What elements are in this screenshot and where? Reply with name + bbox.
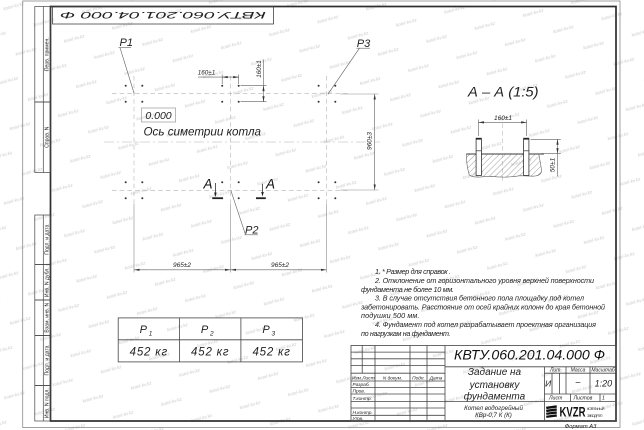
svg-text:Формат А3: Формат А3	[565, 424, 597, 430]
svg-text:1: 1	[602, 396, 605, 402]
svg-text:Изм.Лист: Изм.Лист	[352, 375, 375, 381]
svg-text:452 кг: 452 кг	[252, 346, 290, 358]
svg-text:Дата: Дата	[429, 375, 443, 381]
svg-text:фундамента: фундамента	[464, 390, 526, 402]
svg-text:452 кг: 452 кг	[130, 346, 168, 358]
svg-text:Взам. инв. N: Взам. инв. N	[45, 302, 51, 332]
svg-text:Инв. N подл.: Инв. N подл.	[45, 388, 51, 418]
svg-text:установку: установку	[469, 380, 521, 391]
svg-text:965±2: 965±2	[271, 262, 289, 269]
svg-text:Ось симетрии котла: Ось симетрии котла	[144, 126, 262, 138]
svg-text:1:20: 1:20	[595, 378, 613, 388]
svg-text:КВТУ.060.201.04.000 Ф: КВТУ.060.201.04.000 Ф	[454, 347, 605, 363]
svg-text:Котел водогрейный: Котел водогрейный	[464, 405, 523, 412]
svg-text:Разраб.: Разраб.	[353, 382, 370, 388]
svg-text:ЗАВОД РЭП: ЗАВОД РЭП	[587, 413, 603, 418]
svg-text:160±1: 160±1	[494, 115, 512, 122]
svg-text:452 кг: 452 кг	[191, 346, 229, 358]
svg-text:Листов: Листов	[573, 396, 593, 402]
svg-text:960±3: 960±3	[366, 132, 373, 150]
svg-text:А – А (1:5): А – А (1:5)	[467, 84, 539, 100]
svg-text:по нагрузкам на фундамент.: по нагрузкам на фундамент.	[361, 329, 451, 338]
svg-text:Т.контр.: Т.контр.	[353, 396, 372, 402]
svg-text:–: –	[575, 377, 581, 387]
svg-text:Н.контр.: Н.контр.	[353, 410, 373, 416]
svg-text:Пров.: Пров.	[353, 389, 366, 395]
svg-text:0.000: 0.000	[145, 110, 171, 122]
svg-text:965±2: 965±2	[173, 262, 191, 269]
svg-text:N докум.: N докум.	[383, 375, 402, 381]
svg-text:Лит: Лит	[549, 368, 560, 374]
svg-text:Масса: Масса	[571, 368, 586, 374]
svg-text:Задание на: Задание на	[468, 367, 522, 378]
svg-text:1. * Размер для справок .: 1. * Размер для справок .	[375, 267, 451, 276]
svg-text:Подп. и дата: Подп. и дата	[45, 345, 51, 375]
svg-text:50±1: 50±1	[550, 157, 557, 172]
svg-text:3. В случае отсутствия бетонн: 3. В случае отсутствия бетонного пола пл…	[375, 294, 584, 303]
svg-text:2. Отклонение от горизонтальн: 2. Отклонение от горизонтального уровня …	[374, 276, 594, 285]
svg-text:KVZR: KVZR	[560, 405, 586, 420]
svg-text:И: И	[545, 378, 552, 388]
svg-text:КВТУ.060.201.04.000 Ф: КВТУ.060.201.04.000 Ф	[59, 9, 266, 20]
svg-text:160±1: 160±1	[198, 70, 215, 77]
svg-text:Перв. примен.: Перв. примен.	[45, 37, 51, 71]
svg-text:фундамента не более 10 мм.: фундамента не более 10 мм.	[361, 285, 454, 294]
svg-text:Подп. и дата: Подп. и дата	[45, 225, 51, 255]
svg-text:Лист: Лист	[548, 396, 563, 402]
svg-text:Справ. N: Справ. N	[45, 126, 51, 148]
svg-text:КВр-0,7 К (К): КВр-0,7 К (К)	[475, 412, 512, 419]
svg-text:забетонировать. Расстояние от: забетонировать. Расстояние от осей крайн…	[360, 302, 605, 311]
svg-text:4. Фундамент под котел разраб: 4. Фундамент под котел разрабатывает про…	[375, 320, 596, 329]
svg-text:Подп.: Подп.	[412, 375, 425, 381]
svg-text:А: А	[265, 177, 275, 192]
svg-text:подушки 500 мм.: подушки 500 мм.	[361, 311, 420, 320]
svg-text:КОТЕЛЬНЫЙ: КОТЕЛЬНЫЙ	[587, 406, 605, 411]
svg-text:160±1: 160±1	[256, 60, 263, 77]
svg-text:А: А	[203, 177, 213, 192]
svg-text:Инв. N дубл.: Инв. N дубл.	[45, 267, 51, 297]
svg-text:Утв.: Утв.	[353, 416, 364, 422]
svg-text:Масштаб: Масштаб	[591, 368, 615, 374]
